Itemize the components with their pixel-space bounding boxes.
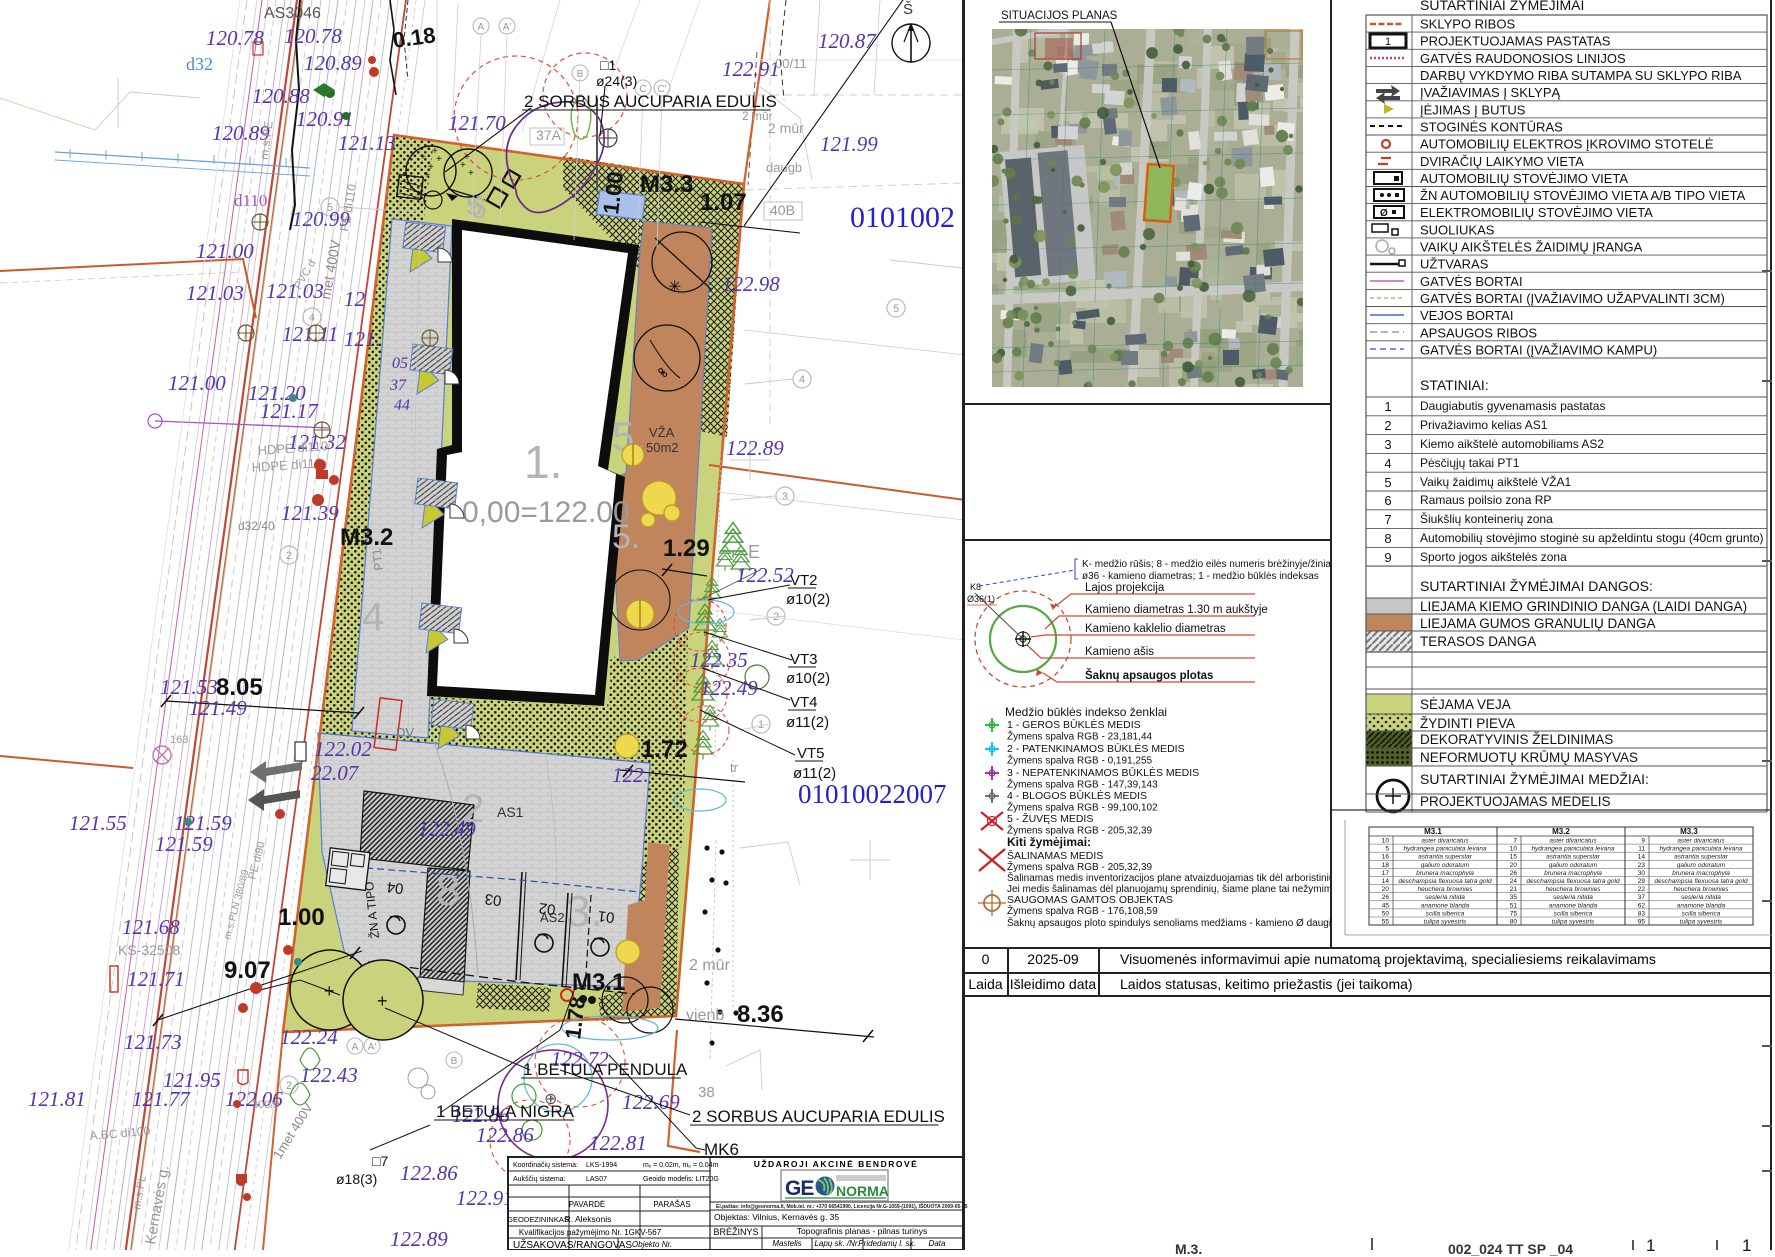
svg-text:Data: Data	[929, 1239, 946, 1248]
svg-text:PAVARDĖ: PAVARDĖ	[569, 1200, 605, 1209]
svg-text:Kvalifikacijos pažymėjimo Nr.: Kvalifikacijos pažymėjimo Nr. 1GKV-567	[519, 1228, 662, 1237]
svg-text:UŽDAROJI AKCINĖ BENDROVĖ: UŽDAROJI AKCINĖ BENDROVĖ	[754, 1158, 919, 1169]
svg-text:Koordinačių sistema:: Koordinačių sistema:	[513, 1162, 578, 1169]
svg-text:PARAŠAS: PARAŠAS	[653, 1200, 690, 1209]
svg-text:Lapų sk. /Nr.: Lapų sk. /Nr.	[814, 1239, 859, 1248]
svg-text:Pridedamų l. sk.: Pridedamų l. sk.	[858, 1239, 915, 1248]
svg-text:Aukščių sistema:: Aukščių sistema:	[513, 1176, 566, 1183]
svg-text:El.paštas: info@geonorma.lt,: El.paštas: info@geonorma.lt, Mob.tel. nr…	[716, 1202, 968, 1210]
svg-text:R. Aleksonis: R. Aleksonis	[565, 1214, 612, 1224]
svg-text:NORMA: NORMA	[836, 1183, 889, 1199]
svg-text:Geoido modelis: LIT20G: Geoido modelis: LIT20G	[643, 1176, 719, 1183]
svg-text:GEODEZININKAS: GEODEZININKAS	[507, 1215, 569, 1224]
svg-text:Mastelis: Mastelis	[772, 1239, 801, 1248]
svg-text:LKS-1994: LKS-1994	[586, 1162, 617, 1169]
svg-text:LAS07: LAS07	[586, 1176, 607, 1183]
svg-text:BRĖŽINYS: BRĖŽINYS	[713, 1227, 758, 1237]
svg-text:Objekto Nr.: Objekto Nr.	[632, 1240, 672, 1249]
svg-text:GE: GE	[785, 1177, 814, 1200]
svg-text:Topografinis planas - pilnas t: Topografinis planas - pilnas turinys	[797, 1226, 927, 1236]
svg-text:mₓ = 0.02m, mₒ = 0.04m: mₓ = 0.02m, mₒ = 0.04m	[643, 1162, 719, 1169]
svg-text:Objektas: Vilnius, Kernavės g.: Objektas: Vilnius, Kernavės g. 35	[714, 1212, 839, 1222]
svg-text:UŽSAKOVAS/RANGOVAS: UŽSAKOVAS/RANGOVAS	[513, 1238, 632, 1250]
